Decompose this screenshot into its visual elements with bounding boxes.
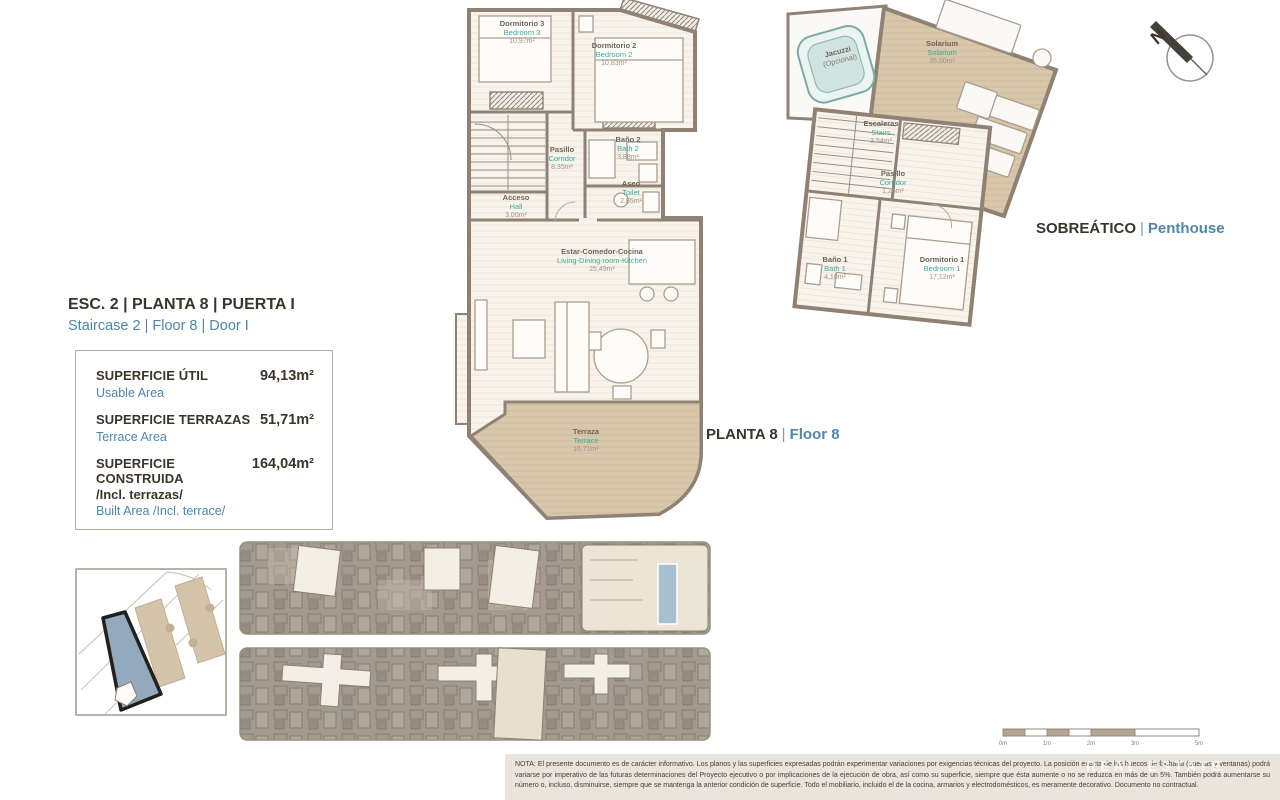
penthouse-plan-drawing (780, 0, 1080, 330)
unit-subtitle: Staircase 2 | Floor 8 | Door I (68, 318, 249, 334)
scale-bar: 0m 1m 2m 3m 5m (993, 720, 1225, 754)
disclaimer-note: NOTA: El presente documento es de caráct… (505, 754, 1280, 800)
compass-north-label: N (1147, 25, 1170, 49)
disclaimer-text-es: NOTA: El presente documento es de caráct… (515, 760, 1270, 792)
floor8-caption: PLANTA 8|Floor 8 (706, 426, 840, 443)
penthouse-caption: SOBREÁTICO|Penthouse (1036, 220, 1225, 237)
areas-box: SUPERFICIE ÚTIL 94,13m² Usable Area SUPE… (75, 350, 333, 530)
site-location-map (75, 568, 227, 716)
key-plan-strips (238, 540, 712, 742)
area-row-built: SUPERFICIE CONSTRUIDA 164,04m² /Incl. te… (96, 456, 314, 518)
key-plan-strip-2 (240, 648, 710, 740)
scale-label-0: 0m (999, 741, 1007, 747)
scale-label-1: 1m (1043, 741, 1051, 747)
floor8-plan-drawing (455, 0, 725, 525)
unit-title: ESC. 2 | PLANTA 8 | PUERTA I (68, 296, 295, 314)
pool-marker (658, 564, 677, 624)
scale-label-2: 2m (1087, 741, 1095, 747)
area-row-usable: SUPERFICIE ÚTIL 94,13m² Usable Area (96, 368, 314, 400)
brochure-page: Dormitorio 3 Bedroom 3 10,97m² Dormitori… (0, 0, 1280, 800)
scale-label-3: 3m (1131, 741, 1139, 747)
scale-label-4: 5m (1195, 741, 1203, 747)
key-plan-strip-1 (240, 542, 710, 634)
compass-north-icon: N (1140, 8, 1230, 93)
area-row-terrace: SUPERFICIE TERRAZAS 51,71m² Terrace Area (96, 412, 314, 444)
